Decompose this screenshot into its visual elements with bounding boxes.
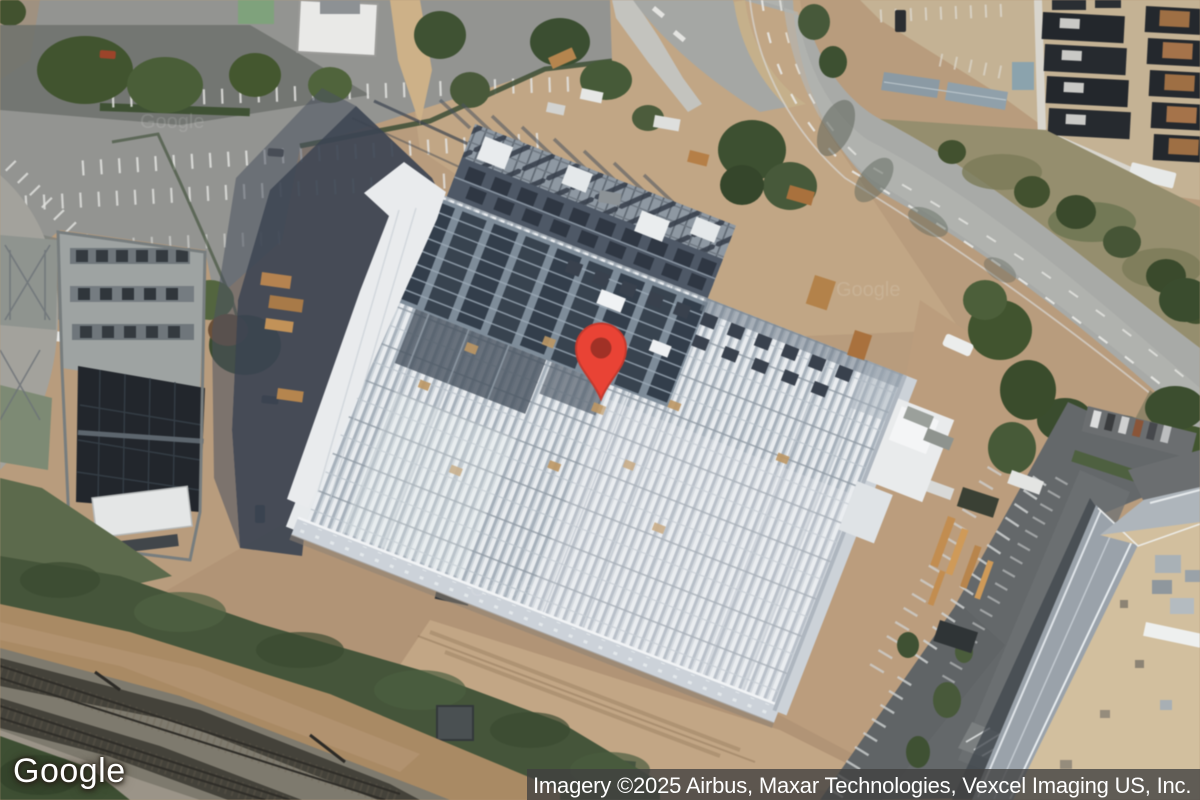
svg-text:Google: Google (140, 111, 205, 133)
svg-text:Google: Google (470, 579, 535, 601)
svg-text:Google: Google (836, 279, 901, 301)
